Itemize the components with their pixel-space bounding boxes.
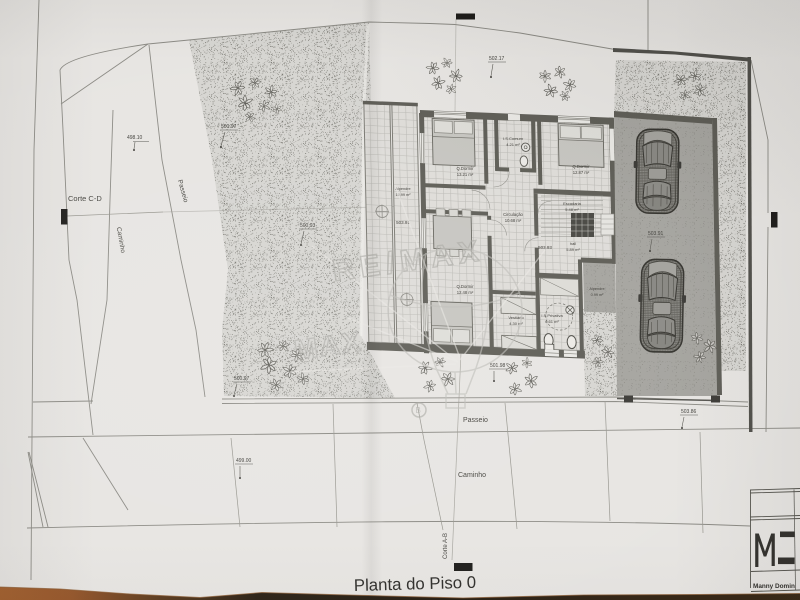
svg-text:500.97: 500.97 [221, 124, 237, 130]
svg-text:Planta do Piso 0: Planta do Piso 0 [354, 573, 477, 595]
svg-text:503.93: 503.93 [538, 245, 552, 250]
svg-text:13.21 m²: 13.21 m² [457, 172, 474, 177]
svg-text:500.97: 500.97 [234, 376, 250, 382]
svg-text:hall: hall [570, 241, 576, 246]
svg-text:Manny Domin: Manny Domin [753, 583, 795, 590]
svg-text:499.00: 499.00 [236, 458, 252, 464]
svg-text:0.99 m²: 0.99 m² [591, 293, 605, 297]
svg-text:Q.Dormir: Q.Dormir [457, 166, 475, 171]
svg-text:12.87 m²: 12.87 m² [573, 170, 590, 175]
svg-text:Caminho: Caminho [115, 227, 126, 254]
svg-text:Caminho: Caminho [458, 472, 486, 479]
svg-text:Passeio: Passeio [463, 417, 488, 424]
svg-text:Corte C-D: Corte C-D [68, 194, 102, 203]
svg-text:503.86: 503.86 [681, 409, 697, 415]
svg-text:10.68 m²: 10.68 m² [505, 218, 522, 223]
svg-text:B: B [416, 406, 421, 415]
svg-text:Corte A-B: Corte A-B [443, 533, 449, 559]
svg-text:I.S.Comum: I.S.Comum [503, 136, 524, 141]
svg-text:I.S.Privativa: I.S.Privativa [541, 313, 563, 318]
svg-text:502.17: 502.17 [489, 56, 505, 62]
svg-text:Alpendre: Alpendre [589, 287, 604, 291]
svg-text:6.61 m²: 6.61 m² [545, 319, 559, 324]
svg-text:Q.Dormir: Q.Dormir [457, 284, 475, 289]
svg-text:5.89 m²: 5.89 m² [566, 247, 580, 252]
svg-text:498.10: 498.10 [127, 135, 143, 141]
svg-text:503.91: 503.91 [648, 231, 664, 237]
svg-text:5.48 m²: 5.48 m² [565, 207, 579, 212]
svg-text:500.93: 500.93 [300, 223, 316, 229]
svg-text:Passeio: Passeio [176, 179, 189, 204]
svg-text:12.48 m²: 12.48 m² [457, 290, 474, 295]
svg-text:Escadaria: Escadaria [563, 201, 582, 206]
svg-text:4.21 m²: 4.21 m² [506, 142, 520, 147]
svg-text:501.98: 501.98 [490, 363, 506, 369]
svg-text:Q.Dormir: Q.Dormir [573, 164, 591, 169]
svg-text:Circulação: Circulação [503, 212, 523, 217]
